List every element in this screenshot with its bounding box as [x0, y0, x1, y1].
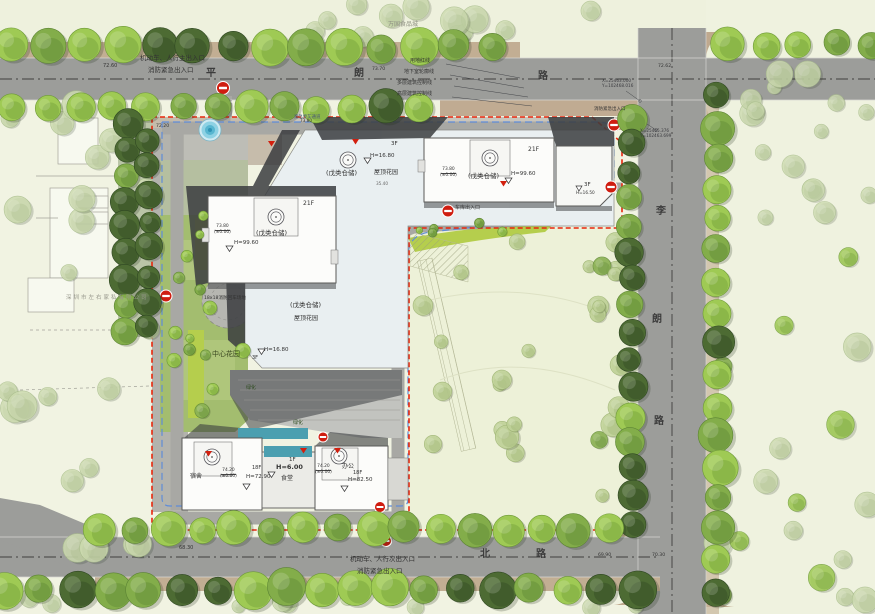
roof-circle-icon: [340, 152, 356, 168]
coord-y: Y=102468.016: [602, 83, 633, 88]
site-plan-canvas: [0, 0, 875, 614]
adjacent-company-label: 深圳市左右家私有限公司: [66, 295, 149, 301]
roof-circle-icon: [268, 209, 284, 225]
spot-elevation: 69.90: [598, 553, 611, 558]
north-road-name-char: 平: [206, 68, 216, 79]
spot-elevation: 72.60: [103, 64, 117, 70]
datum-value: (±0.00): [315, 471, 332, 476]
entrance-marker-icon: [605, 181, 617, 193]
spot-elevation: 68.30: [179, 546, 193, 552]
east-block-floors-label: 3F: [584, 182, 591, 188]
annex: [388, 458, 408, 500]
tower-b-use-label: (戊类仓储): [468, 173, 499, 180]
dorm-height-label: H=72.90: [246, 474, 271, 480]
spot-elevation: 72.20: [156, 124, 169, 129]
south-road-name-char: 路: [536, 549, 546, 560]
coordinate-callout-2: X=25465.376 Y=102463.699: [640, 128, 671, 139]
tower-b-height-label: H=99.60: [511, 171, 536, 177]
secondary-entrance-label: 机动车、人行次出入口: [350, 556, 415, 563]
podium-garden-label: 屋顶花园: [374, 170, 398, 177]
main-entrance-fire-label: 消防紧急出入口: [148, 67, 194, 74]
podium-use-label: (戊类仓储): [326, 170, 357, 177]
canteen-name-label: 食堂: [281, 476, 293, 483]
tower-b-floors-label: 21F: [528, 147, 539, 154]
entrance-marker-icon: [375, 502, 386, 513]
spot-elevation: 70.30: [652, 553, 665, 558]
pool-icon: [199, 119, 221, 141]
north-road-name-char: 路: [538, 71, 548, 82]
tower-a-floors-label: 21F: [303, 201, 314, 208]
office-height-label: H=82.50: [348, 477, 373, 483]
north-road-name-char: 朗: [354, 68, 364, 79]
water-feature: [238, 428, 308, 439]
tower-a-level: 73.80 (±0.00): [214, 225, 231, 236]
site-plan-screenshot: 平 朗 路 李 朗 路 北 路 机动车、人行主出入口 消防紧急出入口 机动车、人…: [0, 0, 875, 614]
leg-height-label: H=16.80: [264, 347, 289, 353]
spot-elevation: 73.70: [372, 67, 385, 72]
podium-height-label: H=16.80: [370, 153, 395, 159]
east-road-name-char: 路: [654, 416, 664, 427]
entrance-marker-icon: [318, 432, 328, 442]
dorm-floors-label: 18F: [252, 466, 261, 472]
roof-circle-icon: [482, 150, 498, 166]
leg-garden-label: 屋顶花园: [294, 316, 318, 323]
leg-floors-label: 3F: [252, 356, 258, 362]
dorm-name-label: 宿舍: [190, 474, 202, 481]
garage-entrance-label: 车库出入口: [455, 206, 480, 212]
leg-use-label: (戊类仓储): [290, 302, 321, 309]
callout-multi-storey: 多层建筑控制线: [397, 81, 432, 87]
callout-basement: 地下室轮廓线: [404, 70, 434, 76]
tree-icon: [416, 227, 423, 234]
canteen-height-label: H=6.00: [276, 464, 303, 471]
spot-elevation: 72.62: [658, 64, 671, 69]
east-block-height-label: H=16.50: [576, 191, 595, 196]
datum-value: (±0.00): [214, 231, 231, 236]
greenery-label: 绿化: [293, 421, 303, 427]
tower-b-level: 73.80 (±0.00): [440, 168, 457, 179]
callout-red-line: 用地红线: [410, 59, 430, 65]
tower-a-height-label: H=99.60: [234, 240, 259, 246]
fire-turnaround-label: 18x18消防回车场地: [204, 296, 246, 301]
podium-dim-label: 35.40: [376, 182, 388, 187]
datum-value: (±0.00): [220, 475, 237, 480]
greenery-label: 绿化: [246, 386, 256, 392]
water-feature-2: [264, 446, 312, 457]
east-road-name-char: 朗: [652, 314, 662, 325]
east-road-name-char: 李: [656, 206, 666, 217]
spot-elevation: 73.80: [300, 119, 312, 124]
entrance-marker-icon: [217, 82, 230, 95]
coord-y: Y=102463.699: [640, 133, 671, 138]
callout-highrise: 高层建筑控制线: [397, 92, 432, 98]
east-low-block: [556, 146, 612, 206]
food-city-label: 万国食品城: [388, 22, 418, 29]
office-floors-label: 18F: [353, 471, 362, 477]
datum-value: (±0.00): [440, 174, 457, 179]
coordinate-callout-1: X=25463.000 Y=102468.016: [602, 78, 633, 89]
tower-a-use-label: (戊类仓储): [256, 230, 287, 237]
office-level: 74.20 (±0.00): [315, 465, 332, 476]
main-entrance-label: 机动车、人行主出入口: [140, 55, 205, 62]
east-fire-entrance-label: 消防紧急出入口: [594, 108, 626, 113]
secondary-entrance-fire-label: 消防紧急出入口: [357, 568, 403, 575]
central-garden-label: 中心花园: [212, 351, 240, 359]
podium-floors-label: 3F: [391, 141, 398, 147]
entrance-marker-icon: [442, 205, 454, 217]
dorm-level: 74.20 (±0.00): [220, 469, 237, 480]
south-road-name-char: 北: [480, 549, 490, 560]
